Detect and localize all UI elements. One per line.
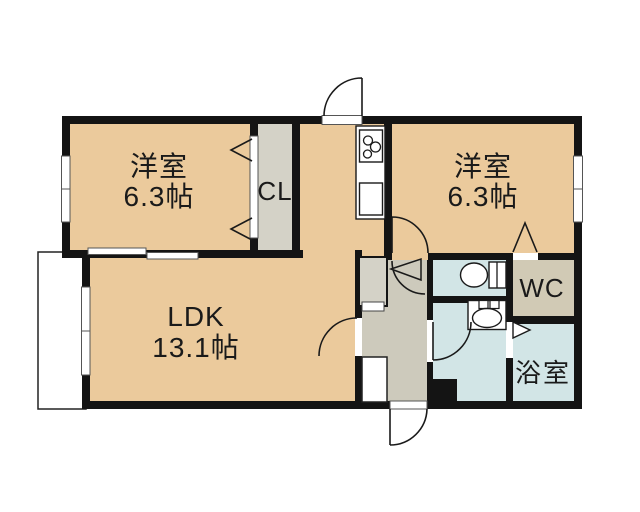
room-name: 洋室	[392, 152, 574, 182]
room-area: 6.3帖	[392, 182, 574, 212]
western-room-1-label: 洋室 6.3帖	[68, 152, 250, 212]
room-area: 13.1帖	[88, 332, 304, 363]
entrance-step	[362, 357, 387, 402]
hall-storage-opening	[362, 302, 384, 311]
floor-plan-drawing	[0, 0, 640, 512]
wall-wc-bath	[506, 316, 582, 324]
bathroom-label: 浴室	[509, 358, 577, 388]
room-name: CL	[255, 176, 295, 206]
pipe-space	[430, 379, 457, 402]
room-name: 洋室	[68, 152, 250, 182]
kitchen-counter-icon	[356, 126, 385, 219]
entrance-door-swing	[390, 409, 427, 445]
sliding-door-room1-ldk-a	[88, 248, 146, 255]
service-door-gap	[322, 116, 362, 125]
ldk-door-gap	[355, 318, 362, 356]
hall-storage	[359, 257, 387, 306]
ldk-label: LDK 13.1帖	[88, 301, 304, 363]
toilet-icon	[461, 262, 507, 288]
floor-plan: 洋室 6.3帖 洋室 6.3帖 LDK 13.1帖 CL WC 浴室	[0, 0, 640, 512]
room-name: LDK	[88, 301, 304, 332]
washbasin-icon	[468, 301, 506, 330]
washroom-door-gap	[427, 320, 433, 362]
service-door-swing	[324, 78, 362, 116]
room-name: 浴室	[509, 358, 577, 388]
sliding-door-room1-ldk-b	[147, 253, 198, 260]
wc-door-gap	[513, 253, 538, 260]
western-room-2-label: 洋室 6.3帖	[392, 152, 574, 212]
entrance-door-gap	[390, 401, 427, 409]
kitchen-sink-icon	[360, 183, 383, 215]
room-area: 6.3帖	[68, 182, 250, 212]
room-name: WC	[511, 273, 573, 303]
balcony	[38, 252, 86, 409]
wc-label: WC	[511, 273, 573, 303]
bath-door-gap	[506, 322, 513, 358]
closet-label: CL	[255, 176, 295, 206]
room2-door-gap	[392, 253, 428, 260]
